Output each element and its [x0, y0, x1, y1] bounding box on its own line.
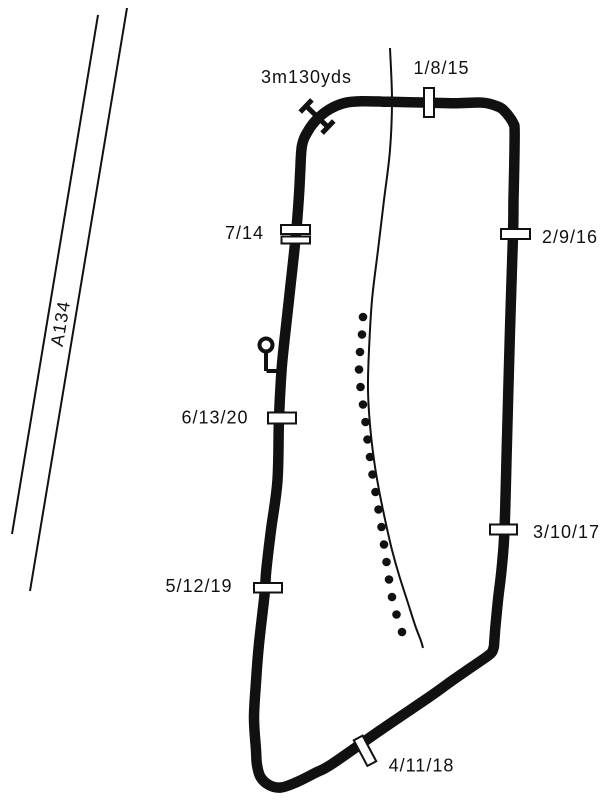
svg-text:5/12/19: 5/12/19: [165, 576, 232, 596]
svg-text:7/14: 7/14: [225, 223, 264, 243]
svg-text:4/11/18: 4/11/18: [389, 756, 455, 776]
svg-text:1/8/15: 1/8/15: [413, 58, 469, 78]
svg-text:2/9/16: 2/9/16: [542, 227, 598, 247]
svg-text:3/10/17: 3/10/17: [533, 522, 600, 542]
svg-text:6/13/20: 6/13/20: [181, 408, 248, 428]
svg-text:3m130yds: 3m130yds: [261, 67, 352, 87]
